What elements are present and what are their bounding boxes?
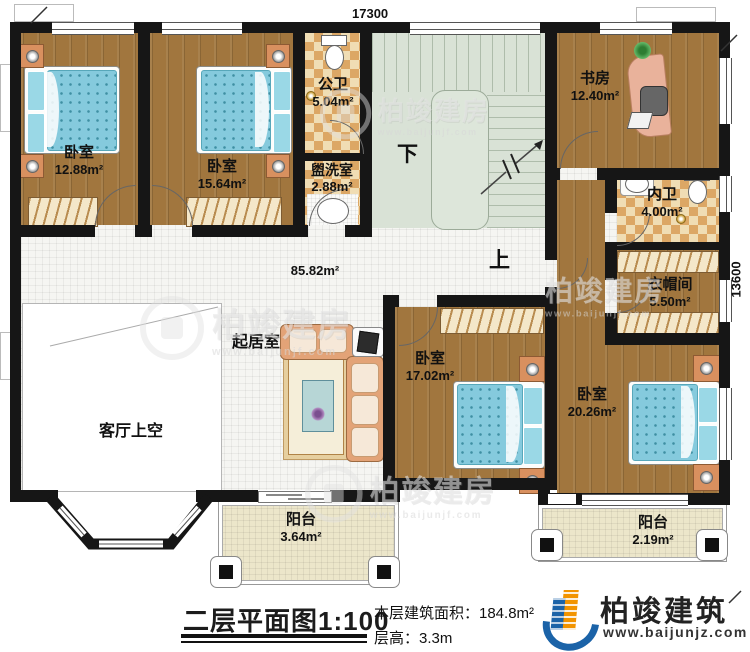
toilet-icon	[688, 180, 707, 204]
wardrobe	[617, 312, 719, 335]
toilet-icon	[325, 45, 344, 70]
wall	[10, 22, 21, 502]
door-opening	[548, 494, 576, 504]
bed-cushion	[27, 113, 45, 153]
bed-cushion	[273, 113, 291, 153]
wall	[293, 33, 305, 225]
nightstand	[20, 154, 44, 178]
dimension-top: 17300	[352, 6, 388, 21]
wall	[437, 295, 557, 307]
stair-up-label: 上	[489, 244, 510, 274]
dimension-right: 13600	[729, 248, 744, 312]
column	[531, 529, 563, 561]
column	[368, 556, 400, 588]
balcony-sliding-door	[258, 491, 332, 503]
title-underline	[181, 634, 367, 638]
wall	[383, 295, 395, 490]
bed-cushion	[273, 71, 291, 111]
stair-void	[431, 90, 489, 230]
stair-down-label: 下	[397, 138, 418, 168]
wall	[545, 22, 557, 260]
sofa	[280, 324, 354, 360]
bed	[196, 66, 292, 154]
room-label-hall-area: 85.82m²	[291, 263, 339, 278]
room-label-bedroom-2: 卧室 15.64m²	[198, 158, 246, 191]
bed	[24, 66, 120, 154]
window	[410, 22, 540, 35]
sofa-cushion	[351, 427, 379, 457]
floor-height-text: 层高：3.3m	[374, 627, 452, 648]
wall	[545, 287, 557, 490]
bed-cushion	[698, 387, 718, 423]
window-ledge	[14, 4, 74, 22]
wardrobe	[186, 197, 282, 227]
nightstand	[20, 44, 44, 68]
column	[696, 529, 728, 561]
window	[719, 176, 732, 212]
stair-treads-side	[487, 92, 545, 228]
stair-treads-upper	[372, 33, 545, 92]
window	[52, 22, 134, 35]
flower-icon	[311, 407, 325, 421]
window	[600, 22, 672, 35]
wall	[330, 490, 400, 502]
floor-area-text: 本层建筑面积：184.8m²	[374, 602, 534, 623]
wall	[21, 225, 95, 237]
sofa	[346, 356, 384, 462]
room-label-balcony-2: 阳台 2.19m²	[632, 514, 673, 547]
wardrobe	[440, 308, 544, 334]
wardrobe	[617, 251, 719, 273]
bed-cushion	[698, 425, 718, 461]
window-ledge	[636, 7, 716, 22]
tv-cabinet	[352, 327, 384, 357]
coffee-table	[302, 380, 334, 432]
sofa-cushion	[351, 395, 379, 425]
plan-title: 二层平面图1:100	[183, 601, 390, 638]
nightstand	[693, 355, 720, 382]
wall	[605, 180, 617, 213]
wall	[597, 168, 719, 180]
bed	[453, 381, 545, 469]
wall	[138, 33, 150, 225]
window	[719, 58, 732, 124]
wall	[605, 333, 719, 345]
title-underline	[181, 641, 367, 643]
wall	[345, 225, 372, 237]
wall	[196, 490, 258, 502]
wall	[383, 478, 557, 490]
nightstand	[693, 464, 720, 491]
room-label-bedroom-1: 卧室 12.88m²	[55, 144, 103, 177]
bed	[628, 381, 720, 465]
room-label-washroom: 盥洗室 2.88m²	[311, 162, 353, 194]
brand-url: www.baijunjz.com	[603, 624, 748, 640]
wall	[360, 33, 372, 225]
wardrobe	[28, 197, 98, 227]
wall	[305, 153, 360, 161]
room-label-private-bath: 内卫 4.00m²	[641, 186, 682, 219]
wall	[545, 168, 560, 180]
nightstand	[519, 356, 545, 382]
wall	[605, 247, 617, 280]
nightstand	[266, 154, 290, 178]
room-label-bedroom-3: 卧室 17.02m²	[406, 350, 454, 383]
wall	[135, 225, 152, 237]
floor-plan-canvas: 17300 13600 卧室 12.88m² 卧室 15.64m² 公卫 5.0…	[0, 0, 750, 652]
room-label-study: 书房 12.40m²	[571, 70, 619, 103]
sofa-cushion	[351, 363, 379, 393]
window	[719, 388, 732, 460]
room-label-bedroom-4: 卧室 20.26m²	[568, 386, 616, 419]
room-label-balcony-1: 阳台 3.64m²	[280, 511, 321, 544]
room-label-void: 客厅上空	[99, 423, 163, 442]
wall	[192, 225, 308, 237]
living-void-area	[22, 303, 222, 492]
bed-cushion	[27, 71, 45, 111]
sofa-cushion	[289, 329, 317, 353]
plant-icon	[634, 42, 651, 59]
wall	[10, 490, 58, 502]
monitor-icon	[627, 112, 654, 129]
window	[162, 22, 242, 35]
room-label-cloakroom: 衣帽间 5.50m²	[647, 276, 692, 309]
bed-cushion	[523, 387, 543, 425]
room-label-public-bath: 公卫 5.04m²	[312, 76, 353, 109]
window	[582, 494, 688, 506]
room-label-living-room: 起居室	[232, 334, 280, 353]
bed-cushion	[523, 427, 543, 465]
column	[210, 556, 242, 588]
tv-icon	[357, 331, 380, 355]
sofa-cushion	[319, 329, 347, 353]
nightstand	[266, 44, 290, 68]
